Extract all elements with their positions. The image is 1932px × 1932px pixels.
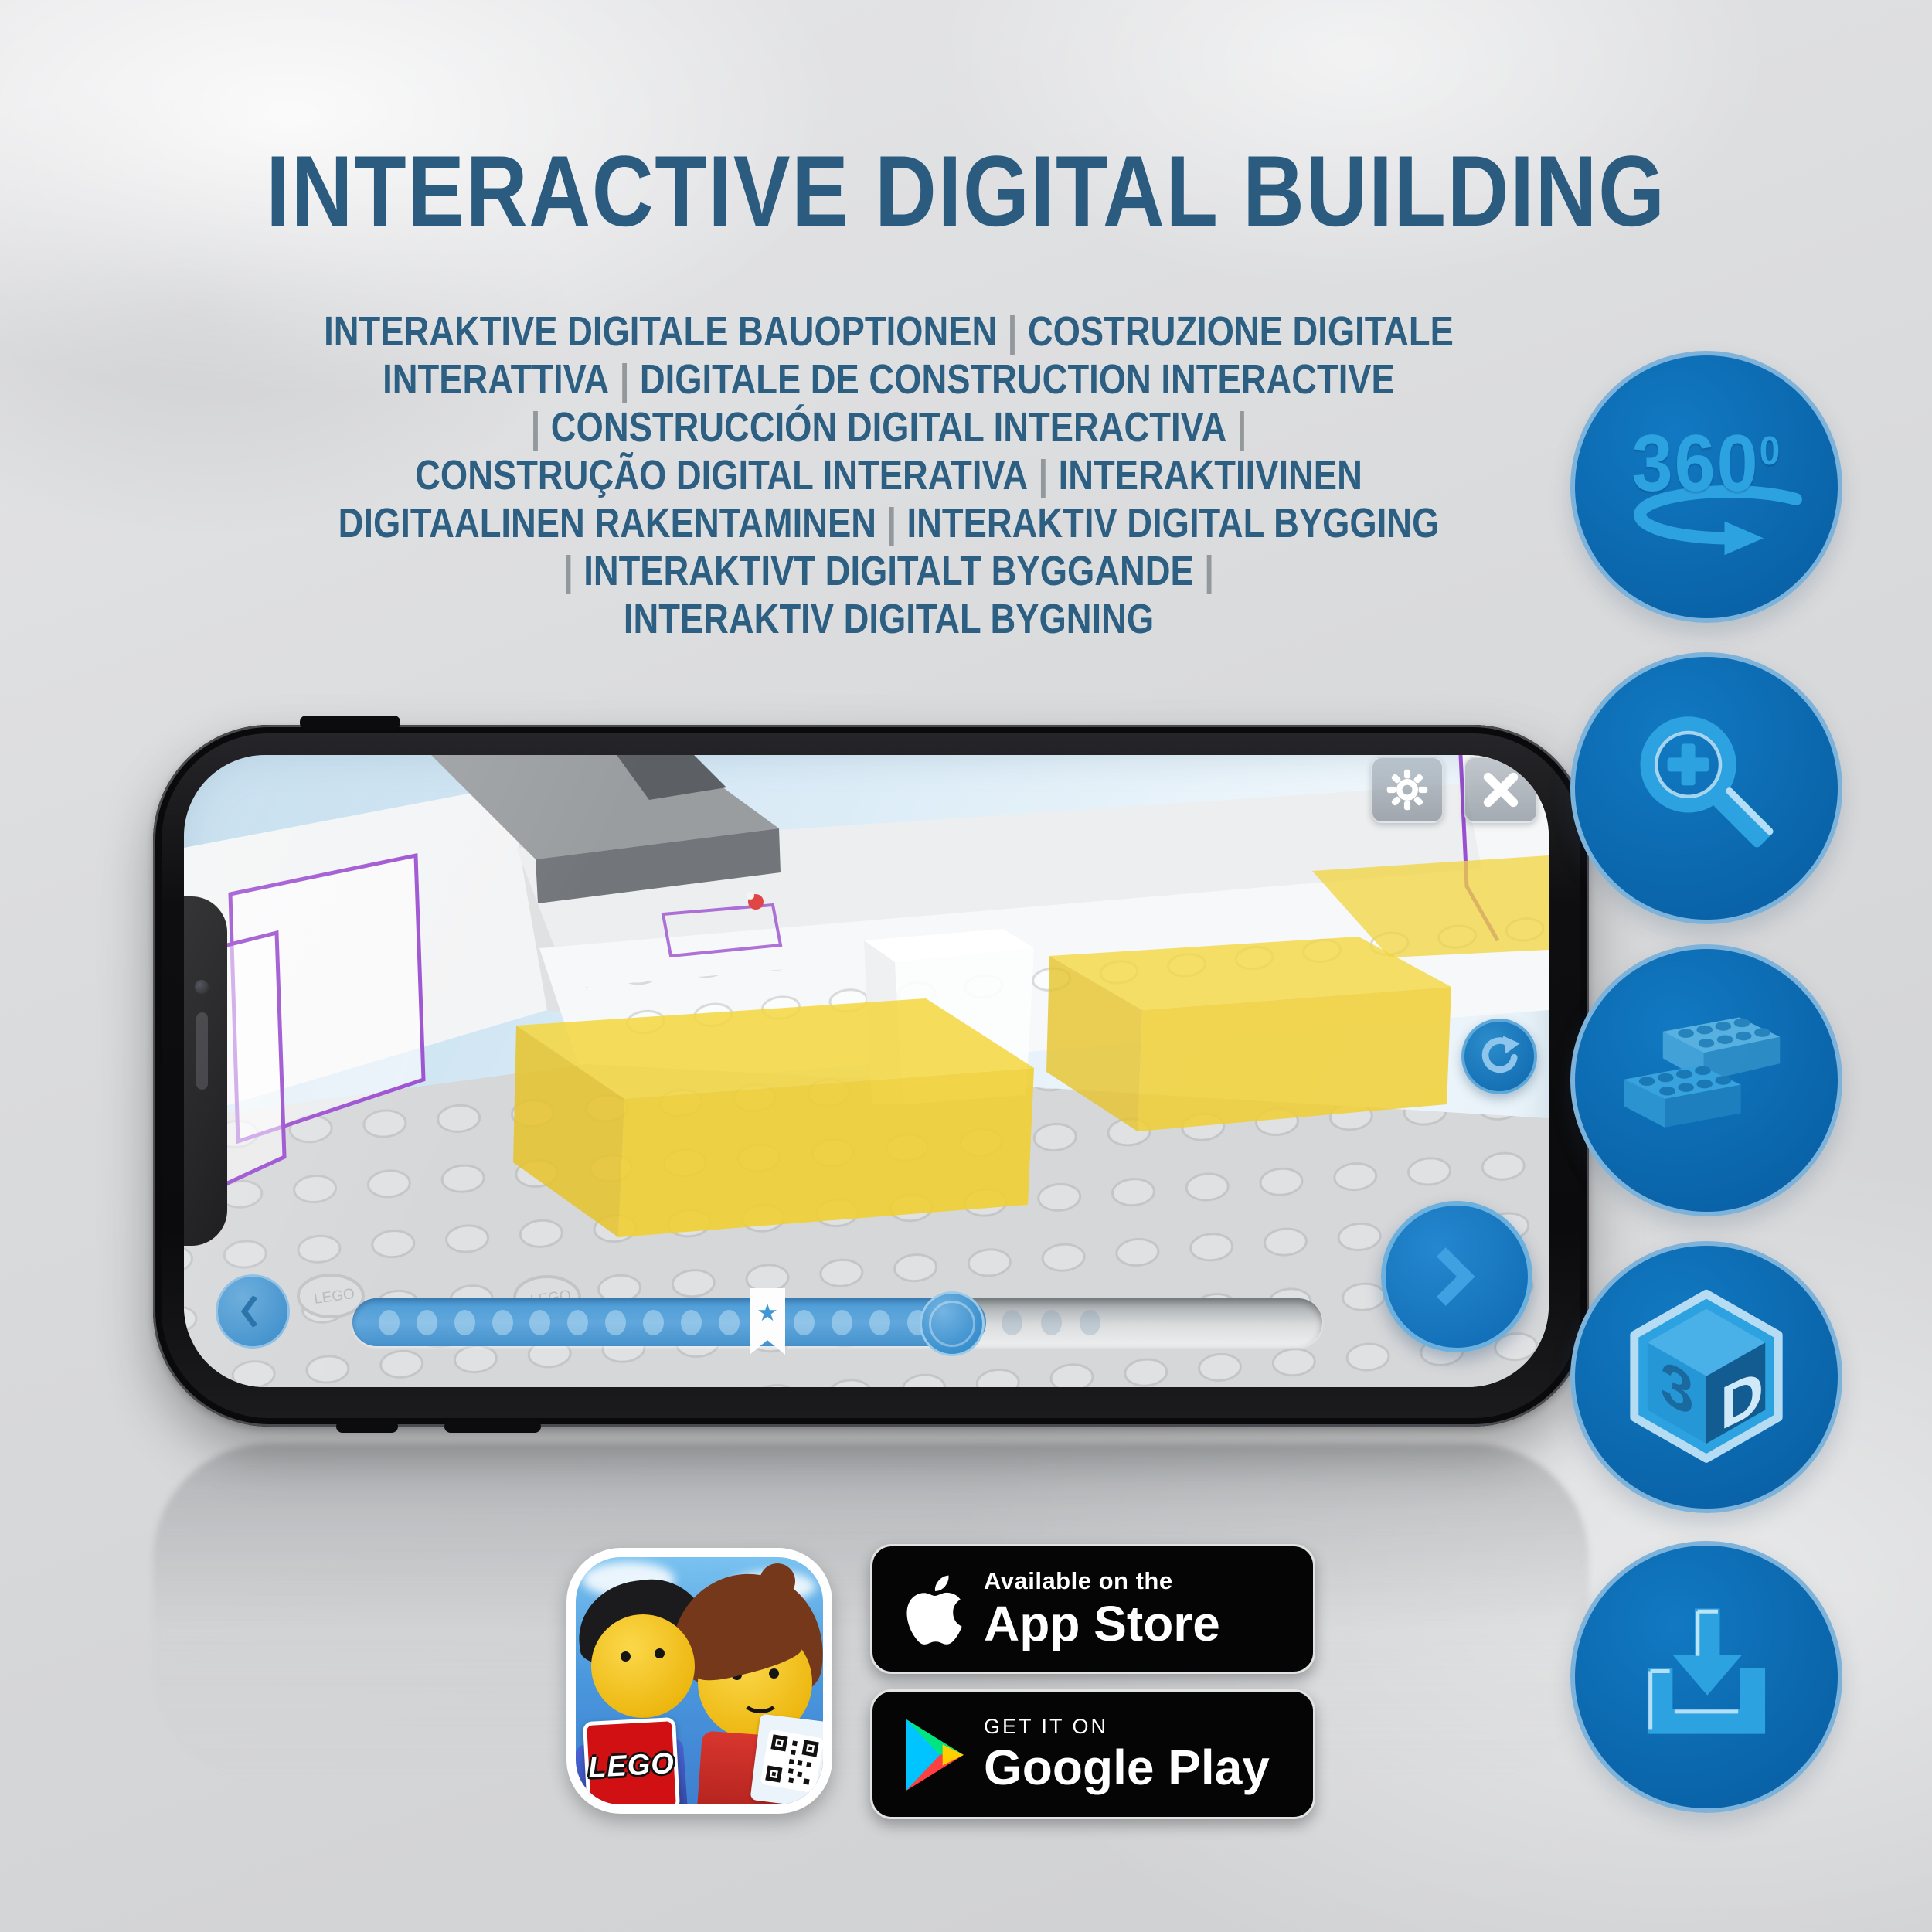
qr-code bbox=[760, 1729, 823, 1793]
rotate-icon bbox=[1477, 1034, 1522, 1079]
feature-3d-view: 3 D bbox=[1570, 1241, 1842, 1513]
phone-volume-button bbox=[336, 1420, 398, 1433]
feature-zoom bbox=[1570, 652, 1842, 924]
subtitle-line: |INTERAKTIVT DIGITALT BYGGANDE| bbox=[304, 547, 1473, 595]
lego-logo: LEGO bbox=[583, 1717, 680, 1804]
google-play-name: Google Play bbox=[984, 1740, 1270, 1794]
girl-minifig-bun bbox=[760, 1563, 795, 1599]
3d-cube-icon: 3 D bbox=[1617, 1288, 1795, 1466]
app-store-badge[interactable]: Available on the App Store bbox=[870, 1544, 1315, 1674]
bricks-icon bbox=[1604, 1005, 1808, 1156]
app-icon-art: LEGO bbox=[576, 1557, 823, 1804]
subtitle-line: CONSTRUÇÃO DIGITAL INTERATIVA|INTERAKTII… bbox=[304, 451, 1473, 499]
next-step-button[interactable] bbox=[1381, 1201, 1532, 1352]
multilingual-subtitle: INTERAKTIVE DIGITALE BAUOPTIONEN|COSTRUZ… bbox=[304, 308, 1473, 643]
boy-minifig-head bbox=[591, 1614, 695, 1718]
chevron-left-icon bbox=[233, 1291, 273, 1332]
zoom-in-icon bbox=[1623, 705, 1790, 872]
instruction-sheet bbox=[750, 1714, 823, 1804]
app-screen: LEGO LEGO LEGO bbox=[184, 755, 1549, 1387]
gear-icon bbox=[1386, 768, 1429, 811]
subtitle-line: DIGITAALINEN RAKENTAMINEN|INTERAKTIV DIG… bbox=[304, 499, 1473, 547]
apple-icon bbox=[901, 1570, 964, 1648]
close-button[interactable] bbox=[1464, 757, 1538, 823]
feature-download bbox=[1570, 1541, 1842, 1813]
settings-button[interactable] bbox=[1371, 757, 1444, 823]
google-play-tagline: GET IT ON bbox=[984, 1715, 1270, 1739]
phone: LEGO LEGO LEGO bbox=[153, 725, 1589, 1427]
progress-upcoming-dots bbox=[1002, 1298, 1100, 1346]
google-play-icon bbox=[899, 1716, 967, 1792]
app-store-tagline: Available on the bbox=[984, 1567, 1220, 1595]
feature-bricks bbox=[1570, 944, 1842, 1216]
phone-power-button bbox=[300, 716, 400, 730]
360-label: 3600 bbox=[1631, 416, 1781, 499]
phone-notch bbox=[184, 896, 227, 1246]
lego-app-icon[interactable]: LEGO bbox=[566, 1548, 832, 1814]
rotate-model-button[interactable] bbox=[1461, 1019, 1537, 1094]
phone-volume-button bbox=[444, 1420, 541, 1433]
subtitle-line: |CONSTRUCCIÓN DIGITAL INTERACTIVA| bbox=[304, 403, 1473, 451]
subtitle-line: INTERAKTIV DIGITAL BYGNING bbox=[304, 595, 1473, 643]
page-title: INTERACTIVE DIGITAL BUILDING bbox=[145, 133, 1787, 249]
download-icon bbox=[1624, 1595, 1788, 1759]
google-play-badge[interactable]: GET IT ON Google Play bbox=[870, 1689, 1315, 1819]
feature-360-rotation: 3600 bbox=[1570, 351, 1842, 623]
progress-slider-knob[interactable] bbox=[920, 1291, 985, 1356]
previous-step-button[interactable] bbox=[216, 1274, 290, 1349]
chevron-right-icon bbox=[1417, 1236, 1497, 1317]
lego-3d-model: LEGO LEGO LEGO bbox=[184, 755, 1549, 1387]
front-camera bbox=[195, 980, 209, 994]
subtitle-line: INTERATTIVA|DIGITALE DE CONSTRUCTION INT… bbox=[304, 355, 1473, 403]
app-store-name: App Store bbox=[984, 1597, 1220, 1651]
earpiece-speaker bbox=[196, 1012, 208, 1090]
progress-step-dots bbox=[379, 1298, 966, 1346]
subtitle-line: INTERAKTIVE DIGITALE BAUOPTIONEN|COSTRUZ… bbox=[304, 308, 1473, 355]
close-icon bbox=[1479, 768, 1522, 811]
